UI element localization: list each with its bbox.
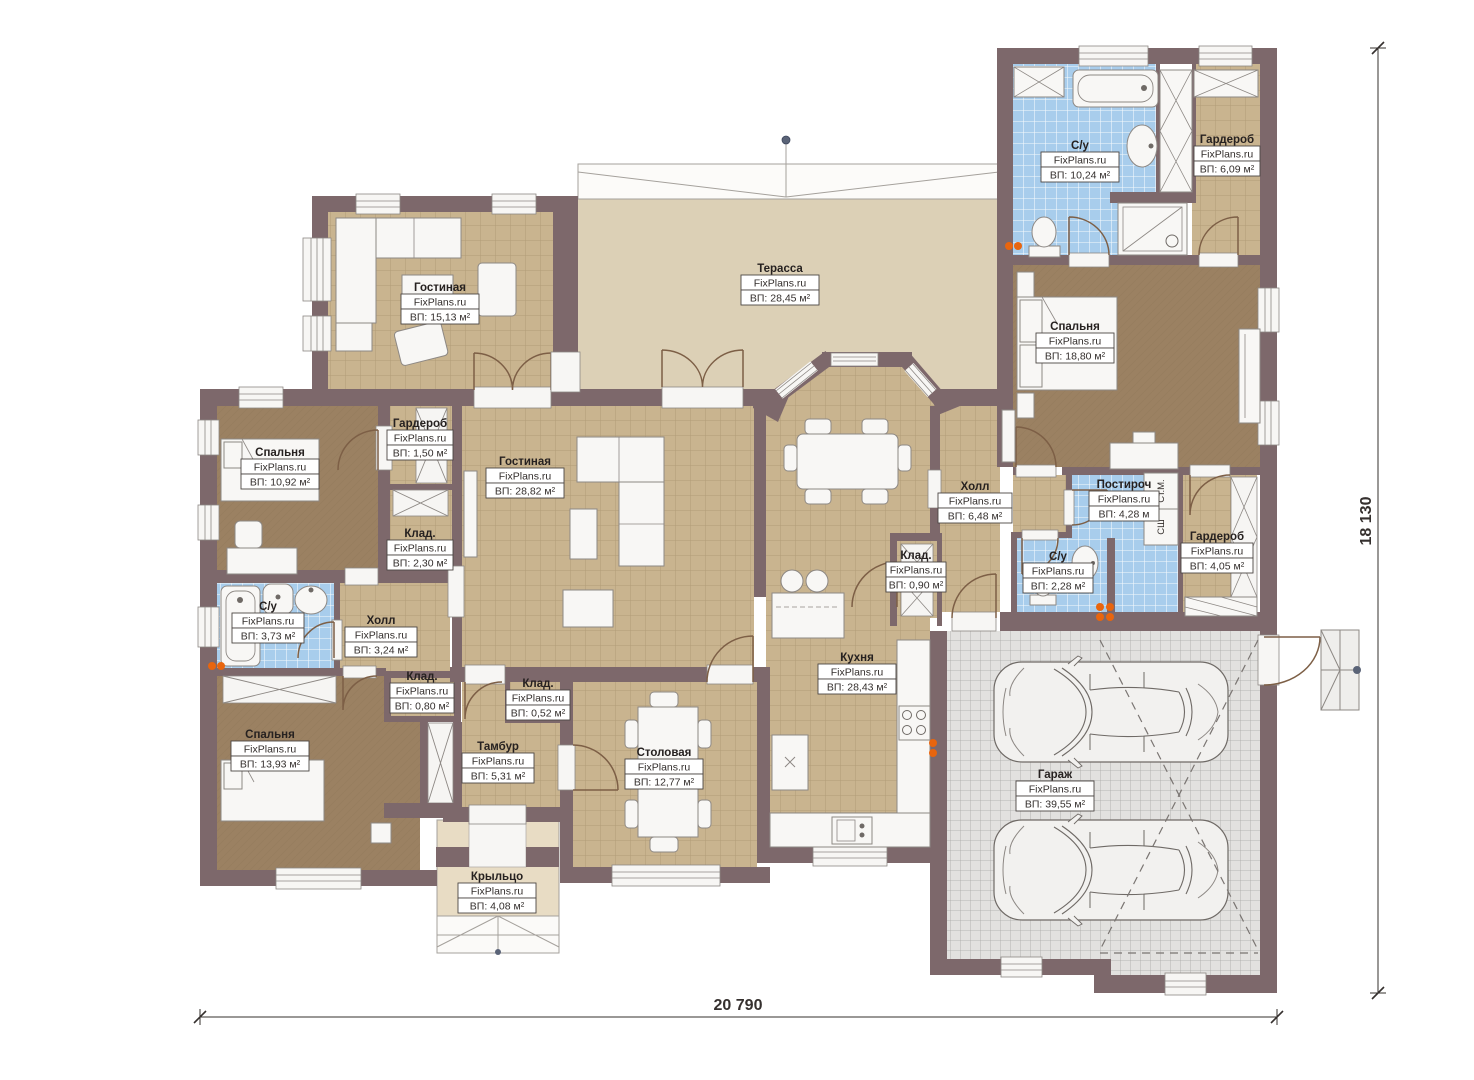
- svg-text:Холл: Холл: [367, 615, 396, 627]
- svg-text:С/у: С/у: [259, 601, 278, 613]
- svg-text:ВП: 3,73 м²: ВП: 3,73 м²: [241, 631, 296, 643]
- svg-text:С/у: С/у: [1049, 551, 1068, 563]
- svg-text:FixPlans.ru: FixPlans.ru: [394, 543, 447, 555]
- svg-text:Спальня: Спальня: [255, 447, 305, 459]
- svg-text:Гардероб: Гардероб: [1200, 134, 1254, 146]
- svg-text:СШ: СШ: [1156, 519, 1167, 535]
- svg-text:ВП: 3,24 м²: ВП: 3,24 м²: [354, 645, 409, 657]
- svg-text:ВП: 1,50 м²: ВП: 1,50 м²: [393, 448, 448, 460]
- svg-text:Гараж: Гараж: [1038, 769, 1073, 781]
- svg-text:FixPlans.ru: FixPlans.ru: [754, 278, 807, 290]
- svg-text:FixPlans.ru: FixPlans.ru: [471, 886, 524, 898]
- svg-text:Постироч: Постироч: [1097, 479, 1152, 491]
- svg-text:Спальня: Спальня: [1050, 321, 1100, 333]
- svg-text:ВП: 10,92 м²: ВП: 10,92 м²: [250, 477, 311, 489]
- svg-text:ВП: 2,30 м²: ВП: 2,30 м²: [393, 558, 448, 570]
- svg-text:Спальня: Спальня: [245, 729, 295, 741]
- svg-text:Столовая: Столовая: [637, 747, 692, 759]
- svg-text:ВП: 18,80 м²: ВП: 18,80 м²: [1045, 351, 1106, 363]
- svg-text:ВП: 0,80 м²: ВП: 0,80 м²: [395, 701, 450, 713]
- svg-text:FixPlans.ru: FixPlans.ru: [1201, 149, 1254, 161]
- svg-text:FixPlans.ru: FixPlans.ru: [638, 762, 691, 774]
- svg-text:ВП: 6,48 м²: ВП: 6,48 м²: [948, 511, 1003, 523]
- svg-text:ВП: 6,09 м²: ВП: 6,09 м²: [1200, 164, 1255, 176]
- svg-text:Гардероб: Гардероб: [393, 418, 447, 430]
- svg-text:18 130: 18 130: [1358, 496, 1375, 545]
- svg-text:ВП: 4,05 м²: ВП: 4,05 м²: [1190, 561, 1245, 573]
- svg-text:Клад.: Клад.: [522, 678, 553, 690]
- svg-text:Тамбур: Тамбур: [477, 741, 519, 753]
- svg-text:FixPlans.ru: FixPlans.ru: [396, 686, 449, 698]
- svg-text:FixPlans.ru: FixPlans.ru: [1098, 494, 1151, 506]
- svg-text:Клад.: Клад.: [900, 550, 931, 562]
- svg-text:Клад.: Клад.: [406, 671, 437, 683]
- svg-text:ВП: 4,28 м: ВП: 4,28 м: [1099, 509, 1150, 521]
- svg-text:FixPlans.ru: FixPlans.ru: [1191, 546, 1244, 558]
- svg-text:Кухня: Кухня: [840, 652, 874, 664]
- svg-text:ВП: 10,24 м²: ВП: 10,24 м²: [1050, 170, 1111, 182]
- svg-text:ВП: 4,08 м²: ВП: 4,08 м²: [470, 901, 525, 913]
- svg-text:Клад.: Клад.: [404, 528, 435, 540]
- svg-text:FixPlans.ru: FixPlans.ru: [1029, 784, 1082, 796]
- svg-text:ВП: 12,77 м²: ВП: 12,77 м²: [634, 777, 695, 789]
- svg-text:FixPlans.ru: FixPlans.ru: [1032, 566, 1085, 578]
- svg-text:FixPlans.ru: FixPlans.ru: [254, 462, 307, 474]
- svg-text:Гостиная: Гостиная: [499, 456, 551, 468]
- svg-text:Холл: Холл: [961, 481, 990, 493]
- svg-text:FixPlans.ru: FixPlans.ru: [1049, 336, 1102, 348]
- svg-text:ВП: 28,82 м²: ВП: 28,82 м²: [495, 486, 556, 498]
- svg-text:ВП: 0,90 м²: ВП: 0,90 м²: [889, 580, 944, 592]
- svg-text:FixPlans.ru: FixPlans.ru: [394, 433, 447, 445]
- svg-text:20 790: 20 790: [714, 997, 763, 1014]
- svg-text:FixPlans.ru: FixPlans.ru: [512, 693, 565, 705]
- svg-text:FixPlans.ru: FixPlans.ru: [1054, 155, 1107, 167]
- svg-text:ВП: 39,55 м²: ВП: 39,55 м²: [1025, 799, 1086, 811]
- svg-text:ВП: 2,28 м²: ВП: 2,28 м²: [1031, 581, 1086, 593]
- svg-text:ВП: 28,43 м²: ВП: 28,43 м²: [827, 682, 888, 694]
- svg-text:Крыльцо: Крыльцо: [471, 871, 523, 883]
- svg-text:FixPlans.ru: FixPlans.ru: [890, 565, 943, 577]
- svg-text:FixPlans.ru: FixPlans.ru: [242, 616, 295, 628]
- svg-text:ВП: 15,13 м²: ВП: 15,13 м²: [410, 312, 471, 324]
- svg-text:ВП: 13,93 м²: ВП: 13,93 м²: [240, 759, 301, 771]
- svg-text:FixPlans.ru: FixPlans.ru: [831, 667, 884, 679]
- svg-text:FixPlans.ru: FixPlans.ru: [949, 496, 1002, 508]
- svg-text:FixPlans.ru: FixPlans.ru: [472, 756, 525, 768]
- svg-text:ВП: 0,52 м²: ВП: 0,52 м²: [511, 708, 566, 720]
- svg-text:Гардероб: Гардероб: [1190, 531, 1244, 543]
- svg-text:С/у: С/у: [1071, 140, 1090, 152]
- svg-text:FixPlans.ru: FixPlans.ru: [244, 744, 297, 756]
- svg-text:FixPlans.ru: FixPlans.ru: [499, 471, 552, 483]
- svg-text:FixPlans.ru: FixPlans.ru: [355, 630, 408, 642]
- svg-text:ВП: 28,45 м²: ВП: 28,45 м²: [750, 293, 811, 305]
- svg-text:Терасса: Терасса: [757, 263, 803, 275]
- svg-text:FixPlans.ru: FixPlans.ru: [414, 297, 467, 309]
- svg-text:Гостиная: Гостиная: [414, 282, 466, 294]
- svg-text:ВП: 5,31 м²: ВП: 5,31 м²: [471, 771, 526, 783]
